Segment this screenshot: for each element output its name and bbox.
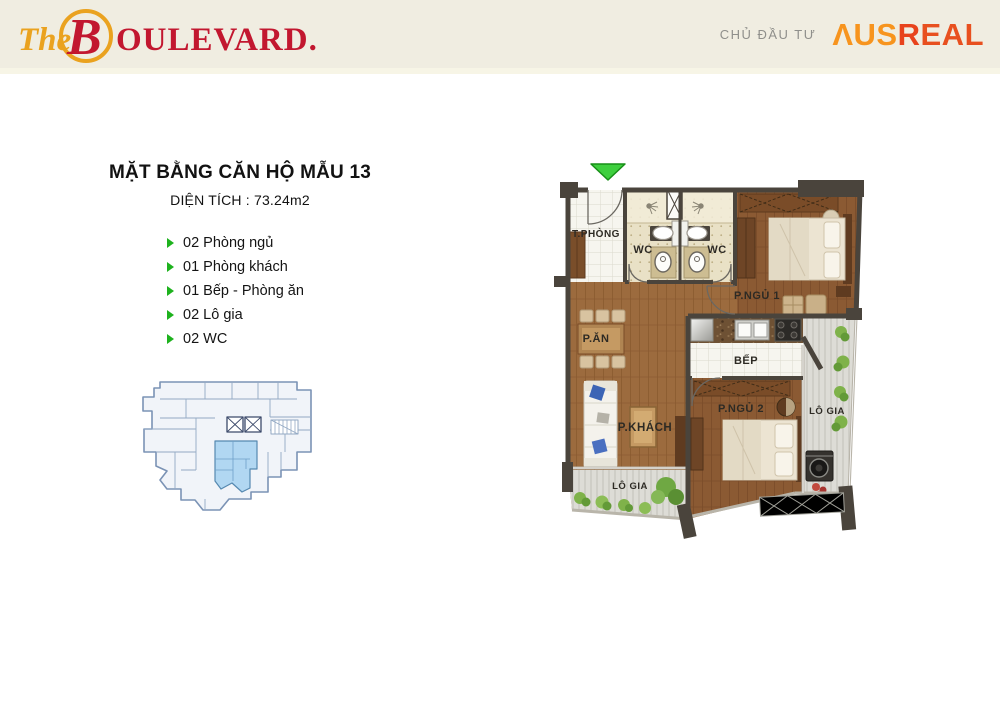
feature-bullet-icon: [167, 310, 174, 320]
room-label-entry: T.PHÒNG: [572, 227, 620, 240]
room-label-living: P.KHÁCH: [618, 421, 672, 434]
logo-rest: OULEVARD.: [116, 22, 318, 58]
sofa-icon: [584, 381, 617, 468]
kitchen-appliances: [691, 319, 801, 341]
sink-icon: [653, 227, 673, 240]
feature-list: 02 Phòng ngủ 01 Phòng khách 01 Bếp - Phò…: [167, 231, 304, 351]
logo-the: The: [18, 22, 71, 58]
ausreal-logo: ΛUSREAL: [832, 19, 984, 50]
room-label-bedroom1: P.NGỦ 1: [734, 289, 780, 302]
plant-icon: [639, 502, 651, 514]
fridge-icon: [691, 319, 713, 341]
boulevard-logo: The B OULEVARD.: [6, 3, 346, 67]
chair-icon: [806, 295, 826, 315]
feature-bullet-icon: [167, 262, 174, 272]
feature-item: 02 WC: [167, 327, 304, 351]
key-plan-map: [128, 368, 335, 516]
feature-label: 01 Phòng khách: [183, 259, 288, 275]
ausreal-r: R: [898, 17, 921, 52]
closet-icon: [694, 381, 790, 396]
room-label-loggia-right: LÔ GIA: [809, 405, 845, 417]
room-label-loggia-bottom: LÔ GIA: [612, 480, 648, 492]
room-label-bedroom2: P.NGỦ 2: [718, 402, 764, 415]
feature-label: 01 Bếp - Phòng ăn: [183, 283, 304, 299]
ac-ledge-icon: [760, 493, 845, 516]
feature-label: 02 WC: [183, 331, 227, 347]
ausreal-eal: EAL: [921, 17, 985, 52]
feature-bullet-icon: [167, 238, 174, 248]
feature-bullet-icon: [167, 286, 174, 296]
room-label-wc-right: WC: [707, 244, 726, 256]
room-label-kitchen: BẾP: [734, 354, 758, 367]
logo-b: B: [66, 9, 102, 66]
sink-icon: [687, 227, 707, 240]
entry-arrow-icon: [591, 164, 625, 180]
ausreal-aus: ΛUS: [832, 17, 897, 52]
header: The B OULEVARD. CHỦ ĐẦU TƯ ΛUSREAL: [0, 0, 1000, 68]
page-title: MẶT BẰNG CĂN HỘ MẪU 13: [92, 162, 388, 184]
room-label-dining: P.ĂN: [583, 332, 610, 345]
feature-label: 02 Lô gia: [183, 307, 243, 323]
tv-console-icon: [675, 416, 686, 468]
feature-label: 02 Phòng ngủ: [183, 235, 273, 251]
bed-icon: [769, 214, 852, 284]
feature-item: 02 Lô gia: [167, 303, 304, 327]
feature-item: 02 Phòng ngủ: [167, 231, 304, 255]
title-block: MẶT BẰNG CĂN HỘ MẪU 13 DIỆN TÍCH : 73.24…: [92, 162, 388, 208]
feature-item: 01 Bếp - Phòng ăn: [167, 279, 304, 303]
tv-console-icon: [691, 418, 703, 470]
developer-label: CHỦ ĐẦU TƯ: [720, 27, 817, 42]
page: The B OULEVARD. CHỦ ĐẦU TƯ ΛUSREAL MẶT B…: [0, 0, 1000, 708]
stairs-icon: [271, 420, 298, 434]
washing-machine-icon: [806, 451, 833, 481]
feature-bullet-icon: [167, 334, 174, 344]
developer-block: CHỦ ĐẦU TƯ ΛUSREAL: [720, 0, 984, 68]
bed-icon: [723, 416, 803, 482]
header-divider: [0, 68, 1000, 74]
feature-item: 01 Phòng khách: [167, 255, 304, 279]
area-subtitle: DIỆN TÍCH : 73.24m2: [92, 192, 388, 208]
floor-plan: T.PHÒNG WC WC P.NGỦ 1 P.ĂN BẾP P.KHÁCH P…: [552, 156, 875, 546]
room-label-wc-left: WC: [633, 244, 652, 256]
